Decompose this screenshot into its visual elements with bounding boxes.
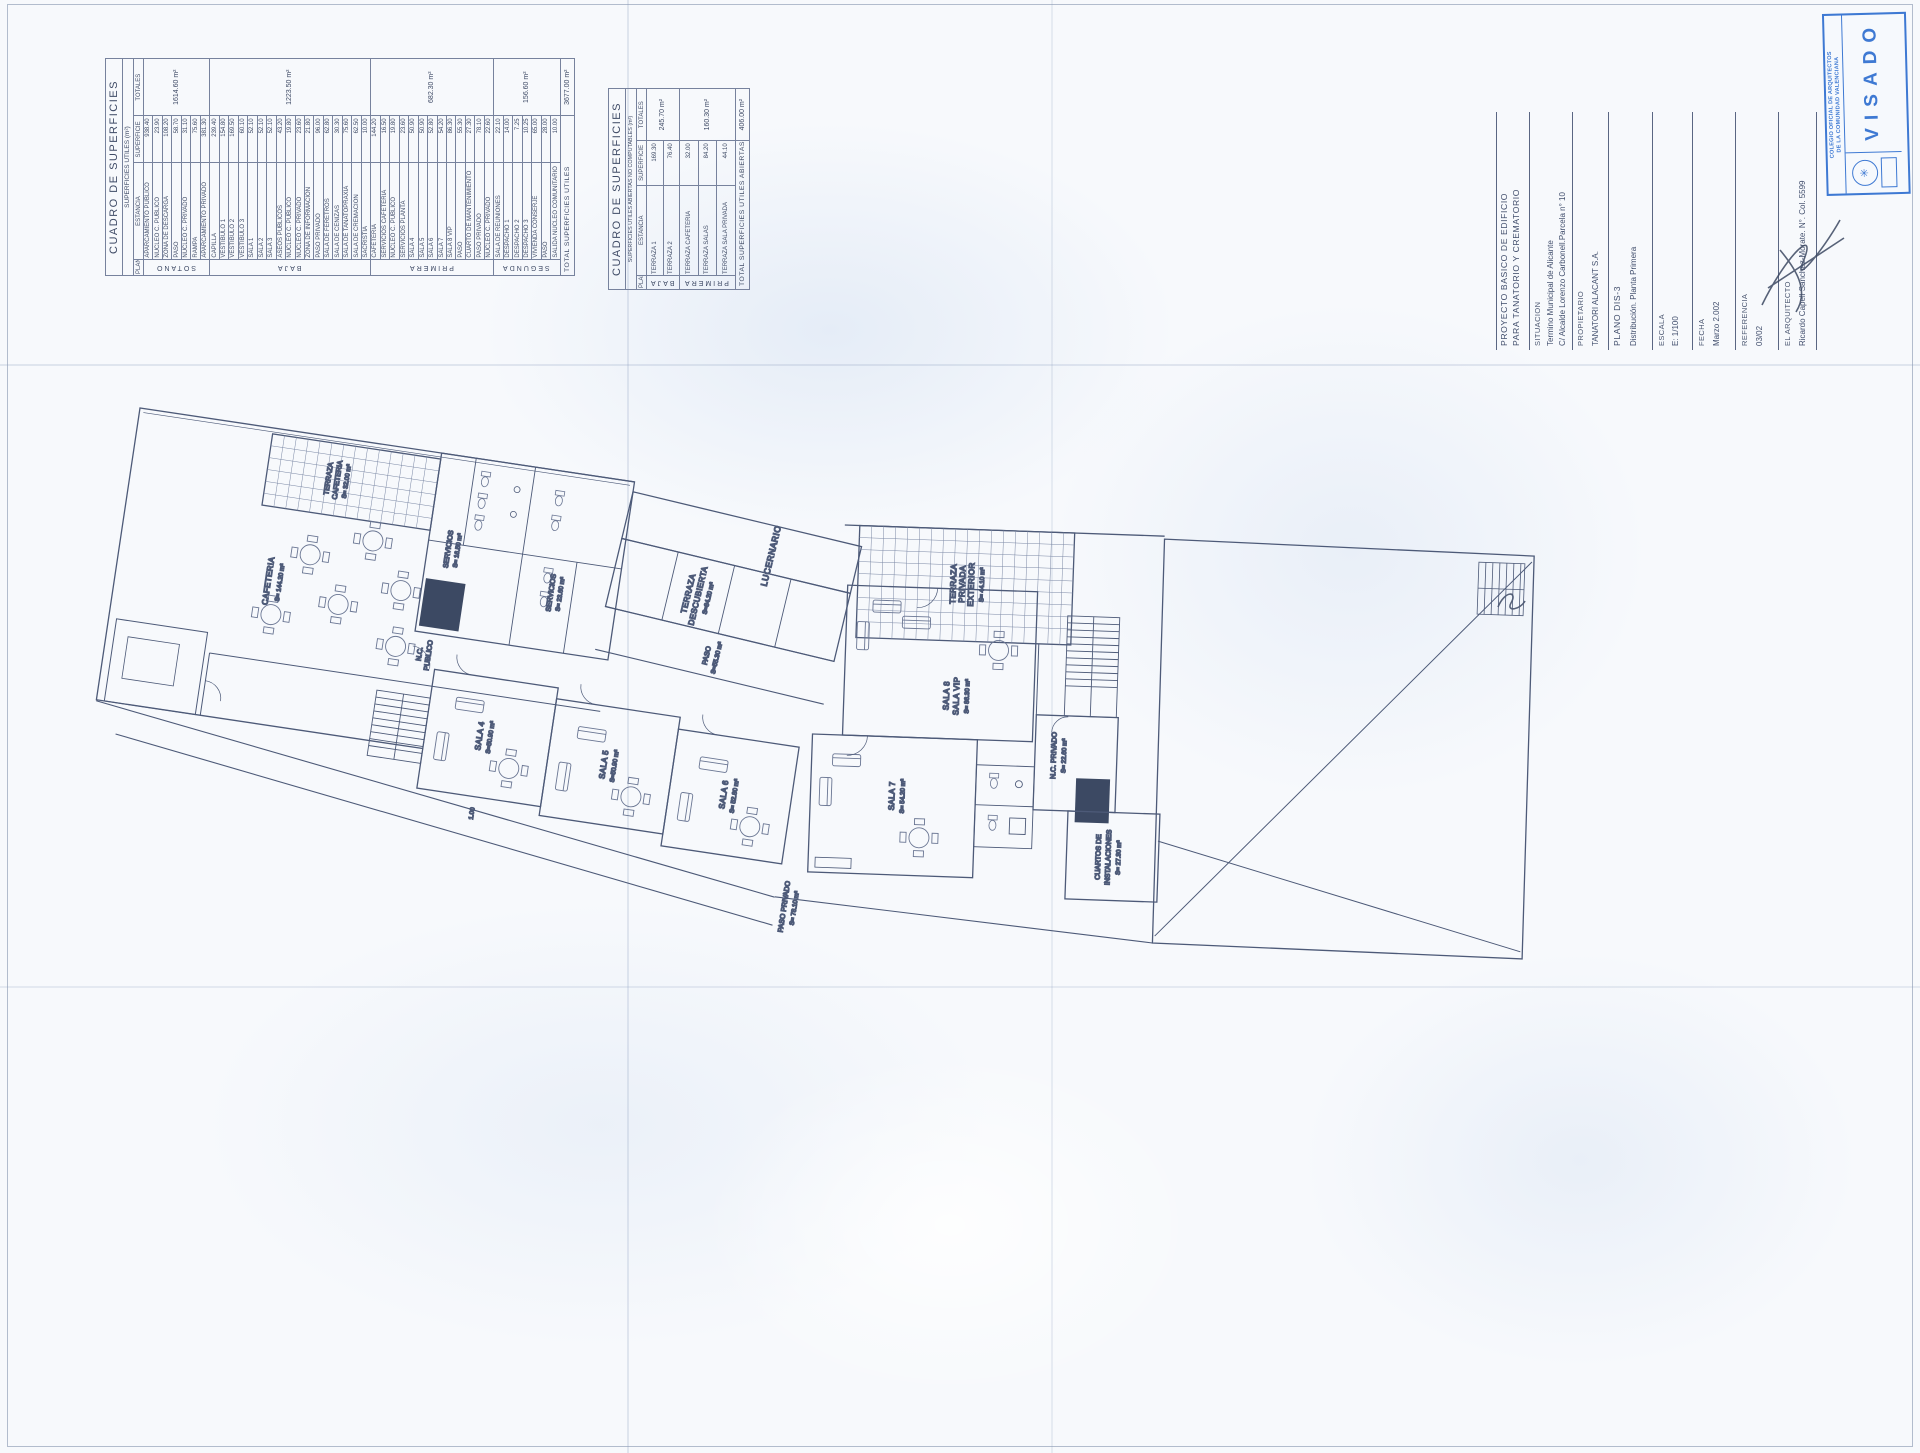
room-label-servicios-cafeteria: SERVICIOS S= 16.50 m² xyxy=(443,530,464,570)
room-label-terraza-cafeteria: TERRAZA CAFETERIA S= 32.00 m² xyxy=(323,458,354,501)
svg-text:PUBLICO: PUBLICO xyxy=(423,639,435,671)
svg-text:S= 78.10 m²: S= 78.10 m² xyxy=(789,891,801,926)
svg-text:SALA 6: SALA 6 xyxy=(717,779,730,809)
sala-8-vip xyxy=(842,585,1037,742)
left-wing: TERRAZA CAFETERIA S= 32.00 m² CAFETERIA … xyxy=(77,408,866,936)
svg-text:EXTERIOR: EXTERIOR xyxy=(966,562,977,606)
svg-text:CUARTOS DE: CUARTOS DE xyxy=(1095,834,1104,880)
room-label-servicios-planta: SERVICIOS S= 23.60 m² xyxy=(545,573,566,613)
svg-text:S=50.90 m²: S=50.90 m² xyxy=(609,749,621,782)
svg-text:S= 144.20 m²: S= 144.20 m² xyxy=(274,563,287,602)
sala-5 xyxy=(539,699,680,834)
label-cuartos: CUARTOS DE INSTALACIONES S= 27.30 m² xyxy=(1094,829,1123,886)
cuartos-instalaciones-area xyxy=(1065,811,1160,902)
room-label-nc-publico: N.C. PUBLICO xyxy=(414,638,434,671)
sala-6 xyxy=(661,729,799,864)
svg-text:S= 22.60 m²: S= 22.60 m² xyxy=(1060,738,1068,773)
svg-text:1.00: 1.00 xyxy=(468,806,477,820)
scanned-plan-sheet: { "meta": { "line_color": "#4d5a78", "st… xyxy=(0,0,1920,1453)
label-paso: PASO S=55.30 m² xyxy=(700,639,724,675)
right-plot xyxy=(1150,539,1536,959)
label-sala8: SALA 8 SALA VIP S= 86.30 m² xyxy=(941,676,971,715)
floor-plan-svg: TERRAZA CAFETERIA S= 32.00 m² CAFETERIA … xyxy=(0,0,1920,1453)
elevator-private xyxy=(1075,778,1111,823)
svg-text:LUCERNARIO: LUCERNARIO xyxy=(759,524,783,587)
svg-text:S= 27.30 m²: S= 27.30 m² xyxy=(1115,840,1123,875)
svg-text:N.C.: N.C. xyxy=(416,647,425,662)
svg-text:SALA 7: SALA 7 xyxy=(887,781,897,811)
door-arcs xyxy=(203,616,725,774)
room-label-sala6: SALA 6 S= 52.80 m² xyxy=(717,777,741,814)
label-lucernario: LUCERNARIO xyxy=(759,524,783,587)
right-wing: TERRAZA PRIVADA EXTERIOR S= 44.10 m² SAL… xyxy=(774,523,1537,959)
dimension-label: 1.00 xyxy=(468,806,477,820)
label-paso-privado: PASO PRIVADO S= 78.10 m² xyxy=(778,880,803,934)
label-sala7: SALA 7 S= 54.20 m² xyxy=(887,778,907,813)
svg-text:S= 52.80 m²: S= 52.80 m² xyxy=(729,779,741,814)
svg-text:INSTALACIONES: INSTALACIONES xyxy=(1104,829,1113,885)
svg-text:S= 44.10 m²: S= 44.10 m² xyxy=(978,567,986,602)
svg-text:S=50.90 m²: S=50.90 m² xyxy=(485,721,497,754)
room-label-sala5: SALA 5 S=50.90 m² xyxy=(597,748,621,783)
svg-text:N.C. PRIVADO: N.C. PRIVADO xyxy=(1050,731,1059,779)
elevator-public xyxy=(419,578,466,631)
paso-privado-corridor xyxy=(78,701,790,925)
public-stairs xyxy=(367,690,430,763)
label-terraza-privada: TERRAZA PRIVADA EXTERIOR S= 44.10 m² xyxy=(948,562,987,607)
cafeteria-area xyxy=(104,486,623,773)
svg-text:SALA 5: SALA 5 xyxy=(597,749,610,779)
private-stairs xyxy=(1064,616,1119,718)
svg-text:SALA VIP: SALA VIP xyxy=(951,677,961,716)
middle-strips: LUCERNARIO TERRAZA DESCUBIERTA S=84.20 m… xyxy=(595,491,862,705)
room-label-sala4: SALA 4 S=50.90 m² xyxy=(473,719,497,754)
svg-text:S=55.30 m²: S=55.30 m² xyxy=(710,641,724,674)
svg-text:SALA 4: SALA 4 xyxy=(473,721,486,751)
nc-privado-area xyxy=(1033,715,1119,824)
room-label-cafeteria: CAFETERIA S= 144.20 m² xyxy=(260,556,287,607)
svg-text:S= 54.20 m²: S= 54.20 m² xyxy=(899,779,907,814)
svg-text:S= 86.30 m²: S= 86.30 m² xyxy=(963,679,971,714)
label-nc-privado: N.C. PRIVADO S= 22.60 m² xyxy=(1050,731,1069,779)
aseo-privado xyxy=(974,765,1035,849)
svg-text:SALA 8: SALA 8 xyxy=(941,681,951,711)
label-terraza-descubierta: TERRAZA DESCUBIERTA S=84.20 m² xyxy=(677,563,719,629)
